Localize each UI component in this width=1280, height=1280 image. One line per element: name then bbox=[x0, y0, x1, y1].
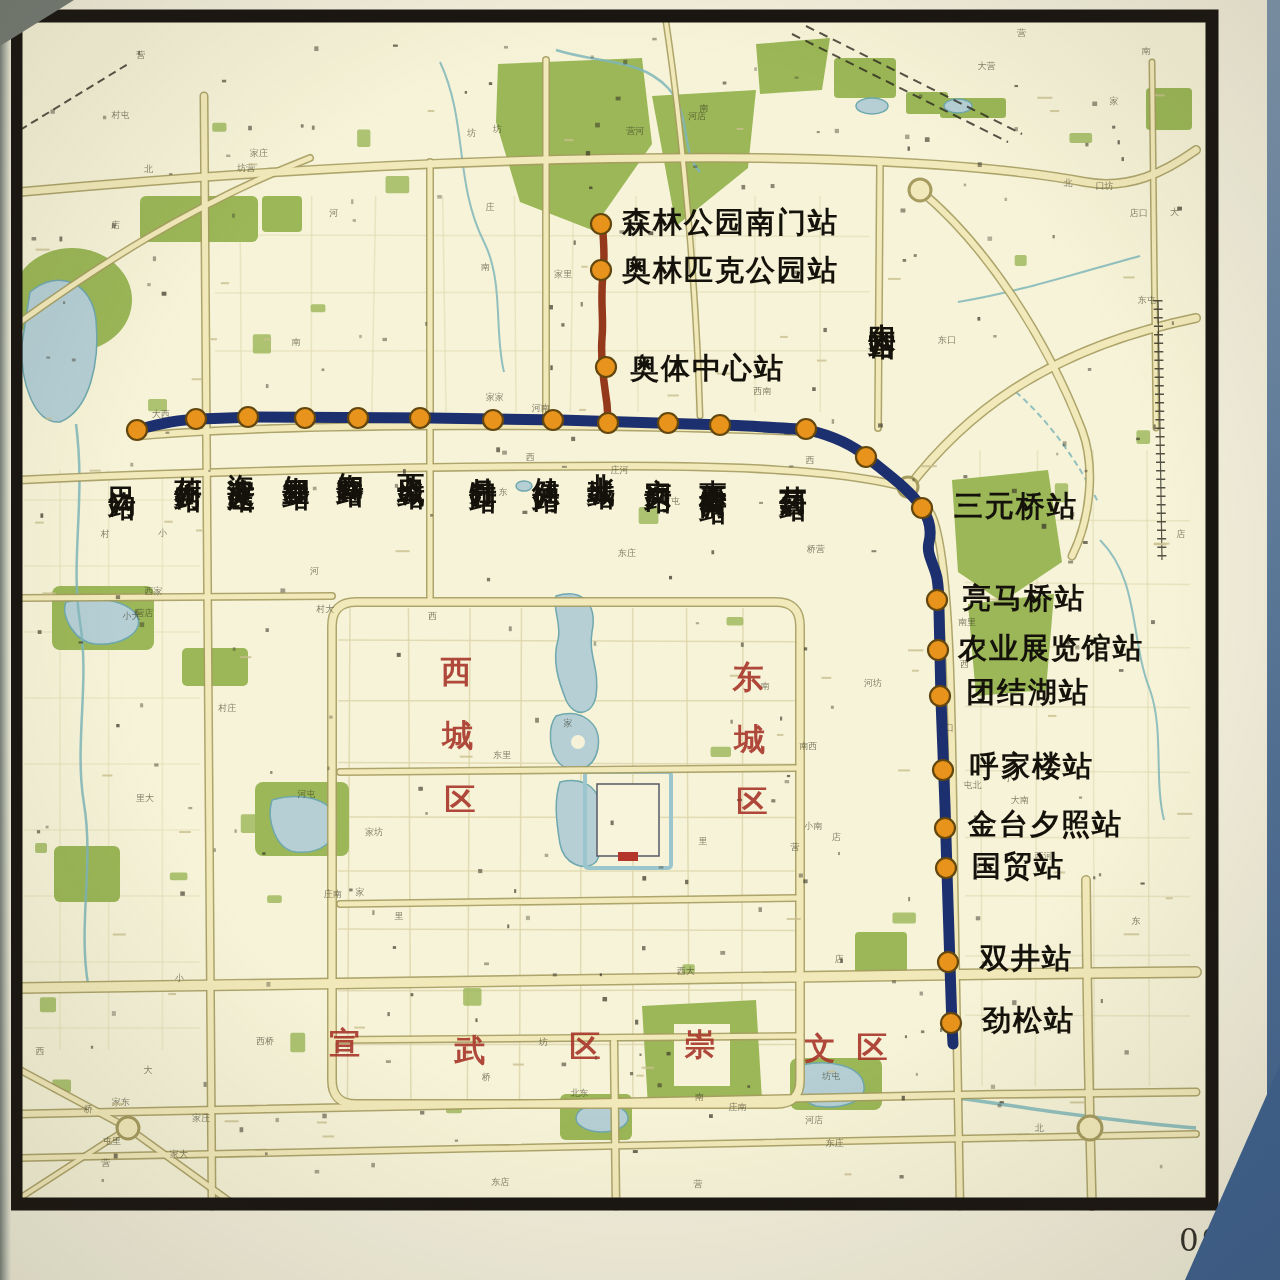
svg-text:东屯: 东屯 bbox=[1137, 295, 1156, 305]
svg-text:村屯: 村屯 bbox=[110, 110, 129, 120]
station-dot bbox=[935, 818, 955, 838]
svg-text:营: 营 bbox=[693, 1179, 702, 1189]
station-dot bbox=[930, 686, 950, 706]
svg-text:店口: 店口 bbox=[1130, 208, 1148, 218]
svg-text:北: 北 bbox=[1063, 178, 1072, 188]
svg-text:西: 西 bbox=[35, 1046, 44, 1056]
station-dot bbox=[941, 1013, 961, 1033]
tiananmen-symbol bbox=[618, 852, 638, 861]
svg-text:西: 西 bbox=[428, 611, 437, 621]
svg-text:家屯: 家屯 bbox=[662, 496, 680, 506]
svg-text:西桥: 西桥 bbox=[256, 1036, 274, 1046]
svg-text:北: 北 bbox=[1035, 1123, 1044, 1133]
forbidden-city bbox=[597, 784, 659, 856]
svg-text:南: 南 bbox=[761, 681, 770, 691]
map-canvas: 南里里店河营河东庄营店坊南口北东村屯里大北东里小南河屯家坊家庄庄河东口家西大营村… bbox=[0, 0, 1280, 1280]
svg-text:家庄: 家庄 bbox=[192, 1113, 210, 1123]
svg-text:大: 大 bbox=[1170, 207, 1179, 217]
svg-text:北: 北 bbox=[144, 164, 153, 174]
svg-text:小: 小 bbox=[157, 528, 167, 538]
svg-text:东庄: 东庄 bbox=[825, 1138, 844, 1148]
station-dot bbox=[127, 420, 147, 440]
svg-text:南: 南 bbox=[291, 337, 300, 347]
station-dot bbox=[348, 408, 368, 428]
svg-text:南西: 南西 bbox=[799, 741, 817, 751]
svg-text:南: 南 bbox=[1142, 46, 1151, 56]
station-dot bbox=[928, 640, 948, 660]
svg-text:东: 东 bbox=[1131, 916, 1141, 926]
svg-text:东店: 东店 bbox=[491, 1177, 510, 1187]
station-dot bbox=[936, 858, 956, 878]
svg-text:东: 东 bbox=[498, 487, 508, 497]
svg-text:大营: 大营 bbox=[977, 61, 995, 71]
station-dot bbox=[295, 408, 315, 428]
svg-text:河屯: 河屯 bbox=[298, 789, 316, 799]
svg-text:桥营: 桥营 bbox=[807, 544, 825, 554]
svg-text:家东: 家东 bbox=[112, 1097, 130, 1107]
svg-text:坊: 坊 bbox=[466, 128, 476, 138]
svg-text:大南: 大南 bbox=[1011, 795, 1029, 805]
svg-text:西大: 西大 bbox=[677, 966, 695, 976]
svg-text:南: 南 bbox=[481, 262, 490, 272]
svg-text:家: 家 bbox=[355, 887, 364, 897]
svg-text:小南: 小南 bbox=[803, 821, 822, 831]
svg-text:营: 营 bbox=[790, 842, 799, 852]
station-dot bbox=[596, 357, 616, 377]
svg-text:里大: 里大 bbox=[136, 793, 154, 803]
svg-text:河店: 河店 bbox=[805, 1115, 823, 1125]
svg-text:庄南: 庄南 bbox=[324, 889, 342, 899]
svg-text:东口: 东口 bbox=[937, 335, 956, 345]
svg-text:坊: 坊 bbox=[538, 1037, 548, 1047]
svg-text:村: 村 bbox=[100, 529, 110, 539]
svg-text:里: 里 bbox=[395, 911, 404, 921]
svg-text:小: 小 bbox=[174, 973, 184, 983]
svg-text:家大: 家大 bbox=[170, 1149, 188, 1159]
station-dot bbox=[591, 214, 611, 234]
svg-text:河: 河 bbox=[310, 566, 319, 576]
map-photo: 南里里店河营河东庄营店坊南口北东村屯里大北东里小南河屯家坊家庄庄河东口家西大营村… bbox=[0, 0, 1280, 1280]
svg-text:大: 大 bbox=[144, 1065, 153, 1075]
svg-text:西家: 西家 bbox=[144, 586, 162, 596]
svg-text:西: 西 bbox=[526, 452, 535, 462]
station-dot bbox=[658, 413, 678, 433]
station-dot bbox=[483, 410, 503, 430]
svg-text:河坊: 河坊 bbox=[864, 678, 882, 688]
station-dot bbox=[591, 260, 611, 280]
station-dot bbox=[710, 415, 730, 435]
svg-text:南: 南 bbox=[699, 103, 708, 113]
station-dot bbox=[238, 407, 258, 427]
svg-text:家坊: 家坊 bbox=[365, 827, 383, 837]
svg-text:家庄: 家庄 bbox=[250, 148, 268, 158]
svg-text:家里: 家里 bbox=[554, 269, 572, 279]
svg-text:屯里: 屯里 bbox=[103, 1136, 121, 1146]
station-dot bbox=[938, 952, 958, 972]
svg-text:东里: 东里 bbox=[492, 750, 511, 760]
svg-text:营: 营 bbox=[136, 50, 145, 60]
svg-text:小: 小 bbox=[1003, 773, 1013, 783]
svg-text:西河: 西河 bbox=[1035, 851, 1053, 861]
svg-text:店: 店 bbox=[832, 832, 841, 842]
svg-text:庄南: 庄南 bbox=[729, 1102, 747, 1112]
svg-text:庄: 庄 bbox=[486, 202, 495, 212]
svg-text:店: 店 bbox=[1176, 529, 1185, 539]
svg-text:屯北: 屯北 bbox=[964, 780, 982, 790]
svg-text:西南: 西南 bbox=[753, 386, 771, 396]
svg-text:店: 店 bbox=[835, 954, 844, 964]
svg-text:营: 营 bbox=[101, 1158, 110, 1168]
svg-text:北东: 北东 bbox=[571, 1088, 589, 1098]
svg-text:口坊: 口坊 bbox=[1095, 181, 1113, 191]
station-dot bbox=[410, 408, 430, 428]
svg-text:桥: 桥 bbox=[482, 1072, 491, 1082]
book-page-edge bbox=[0, 0, 11, 1280]
station-dot bbox=[796, 419, 816, 439]
svg-text:里: 里 bbox=[699, 836, 708, 846]
svg-text:西: 西 bbox=[960, 659, 969, 669]
station-dot bbox=[856, 447, 876, 467]
svg-text:村大: 村大 bbox=[315, 604, 334, 614]
station-dot bbox=[543, 410, 563, 430]
svg-text:庄河: 庄河 bbox=[611, 465, 629, 475]
station-dot bbox=[598, 413, 618, 433]
station-dot bbox=[186, 409, 206, 429]
svg-text:南: 南 bbox=[695, 1092, 704, 1102]
svg-text:家家: 家家 bbox=[486, 392, 504, 402]
svg-text:家: 家 bbox=[1109, 96, 1118, 106]
station-dot bbox=[912, 498, 932, 518]
svg-text:南里: 南里 bbox=[958, 617, 976, 627]
svg-text:桥: 桥 bbox=[84, 1104, 93, 1114]
svg-text:坊: 坊 bbox=[492, 124, 502, 134]
svg-text:东庄: 东庄 bbox=[617, 548, 636, 558]
svg-text:西: 西 bbox=[806, 455, 815, 465]
svg-text:村庄: 村庄 bbox=[217, 703, 236, 713]
svg-text:营河: 营河 bbox=[626, 126, 644, 136]
svg-text:家: 家 bbox=[563, 718, 572, 728]
svg-text:河: 河 bbox=[329, 208, 338, 218]
station-dot bbox=[933, 760, 953, 780]
svg-text:营: 营 bbox=[1017, 28, 1026, 38]
station-dot bbox=[927, 590, 947, 610]
